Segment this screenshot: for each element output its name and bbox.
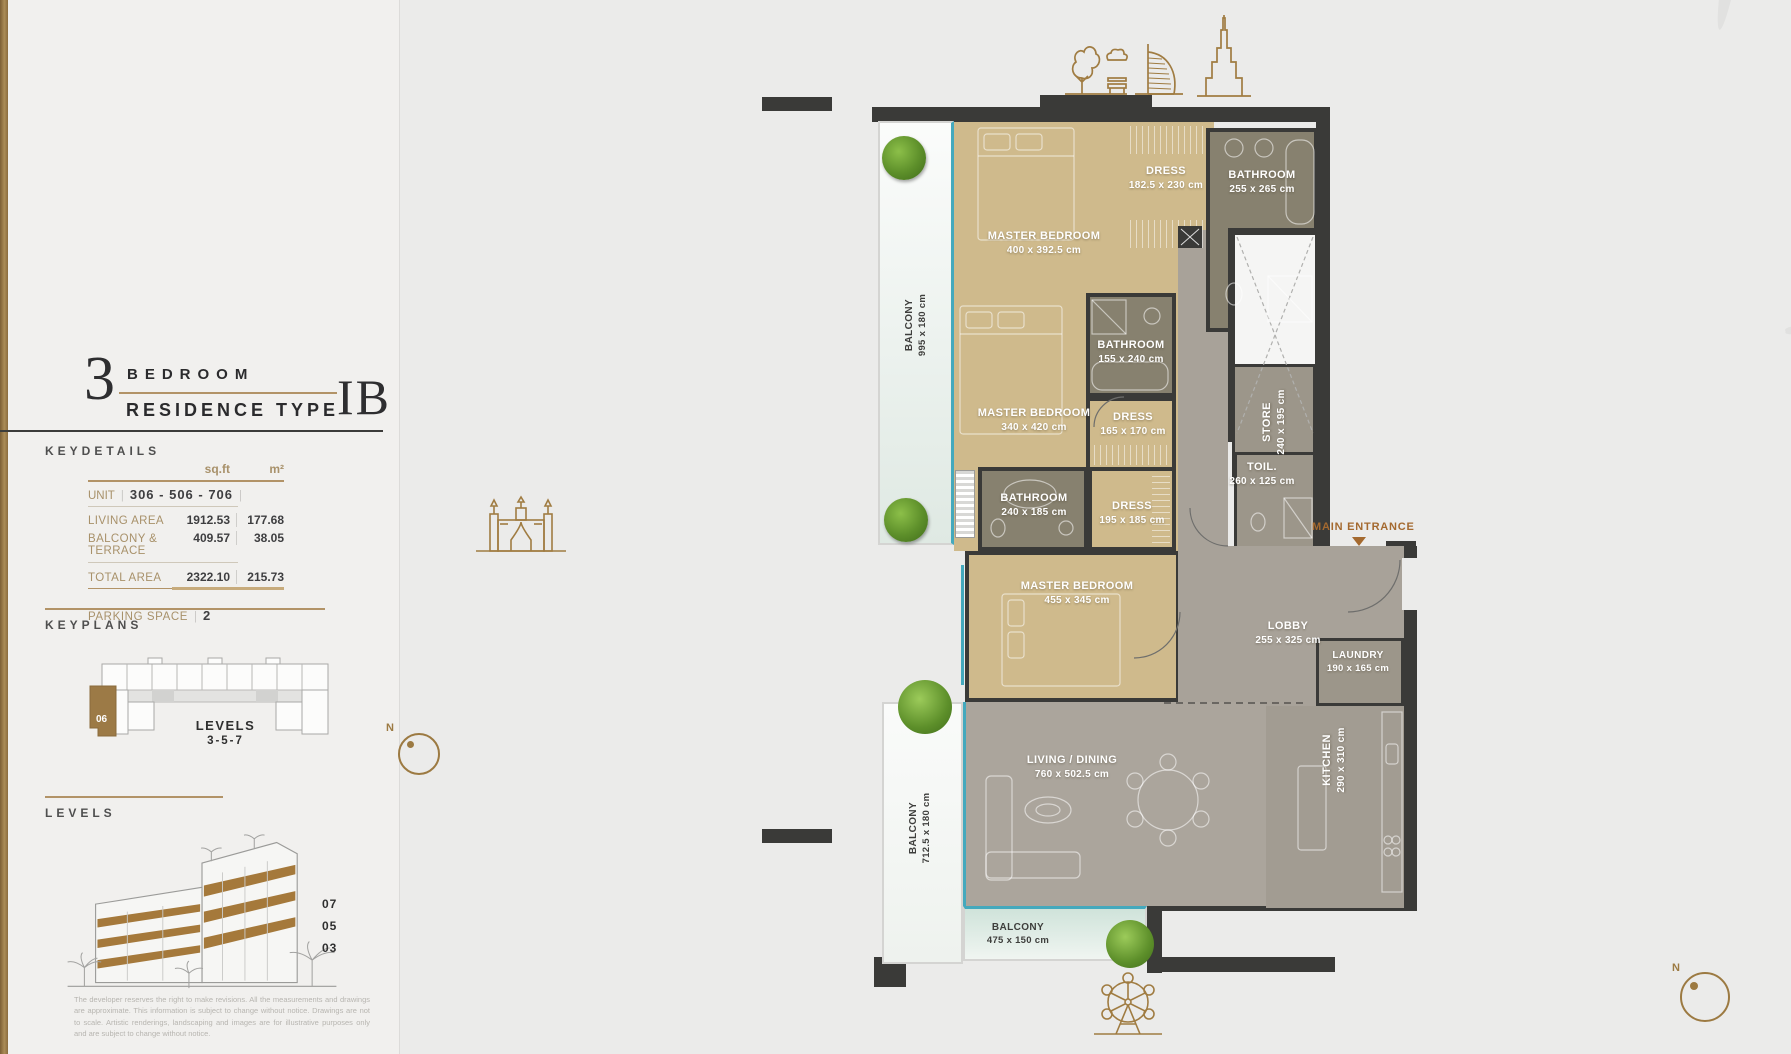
room-label: BATHROOM255 x 265 cm: [1228, 169, 1295, 195]
room-label: KITCHEN290 x 310 cm: [1321, 727, 1347, 792]
room-label: LAUNDRY190 x 165 cm: [1327, 650, 1389, 674]
room-label: MASTER BEDROOM455 x 345 cm: [1021, 580, 1134, 606]
room-label: DRESS182.5 x 230 cm: [1129, 165, 1203, 191]
room-label: LOBBY255 x 325 cm: [1255, 620, 1320, 646]
plan-north-compass-icon: [1680, 972, 1730, 1022]
room-label: STORE240 x 195 cm: [1261, 389, 1287, 454]
room-label-balcony: BALCONY475 x 150 cm: [987, 922, 1049, 946]
room-label: MASTER BEDROOM400 x 392.5 cm: [988, 230, 1101, 256]
plan-compass-north-label: N: [1672, 962, 1680, 974]
room-label: LIVING / DINING760 x 502.5 cm: [1027, 754, 1117, 780]
main-entrance-arrow: [1352, 537, 1366, 546]
room-label: DRESS165 x 170 cm: [1100, 411, 1165, 437]
furniture-and-doors-overlay: [0, 0, 1791, 1054]
room-label: MASTER BEDROOM340 x 420 cm: [978, 407, 1091, 433]
main-entrance-label: MAIN ENTRANCE: [1312, 521, 1415, 533]
room-label: DRESS195 x 185 cm: [1099, 500, 1164, 526]
ferris-wheel-icon: [1092, 972, 1164, 1038]
plan-compass-dot: [1690, 982, 1698, 990]
room-label: TOIL.260 x 125 cm: [1229, 461, 1294, 487]
room-label: BATHROOM240 x 185 cm: [1000, 492, 1067, 518]
room-label: BATHROOM155 x 240 cm: [1097, 339, 1164, 365]
room-label-balcony: BALCONY995 x 180 cm: [904, 294, 928, 356]
floorplan-brochure-page: 3 BEDROOM RESIDENCE TYPE IB KEYDETAILS s…: [0, 0, 1791, 1054]
room-label-balcony: BALCONY712.5 x 180 cm: [908, 793, 932, 864]
